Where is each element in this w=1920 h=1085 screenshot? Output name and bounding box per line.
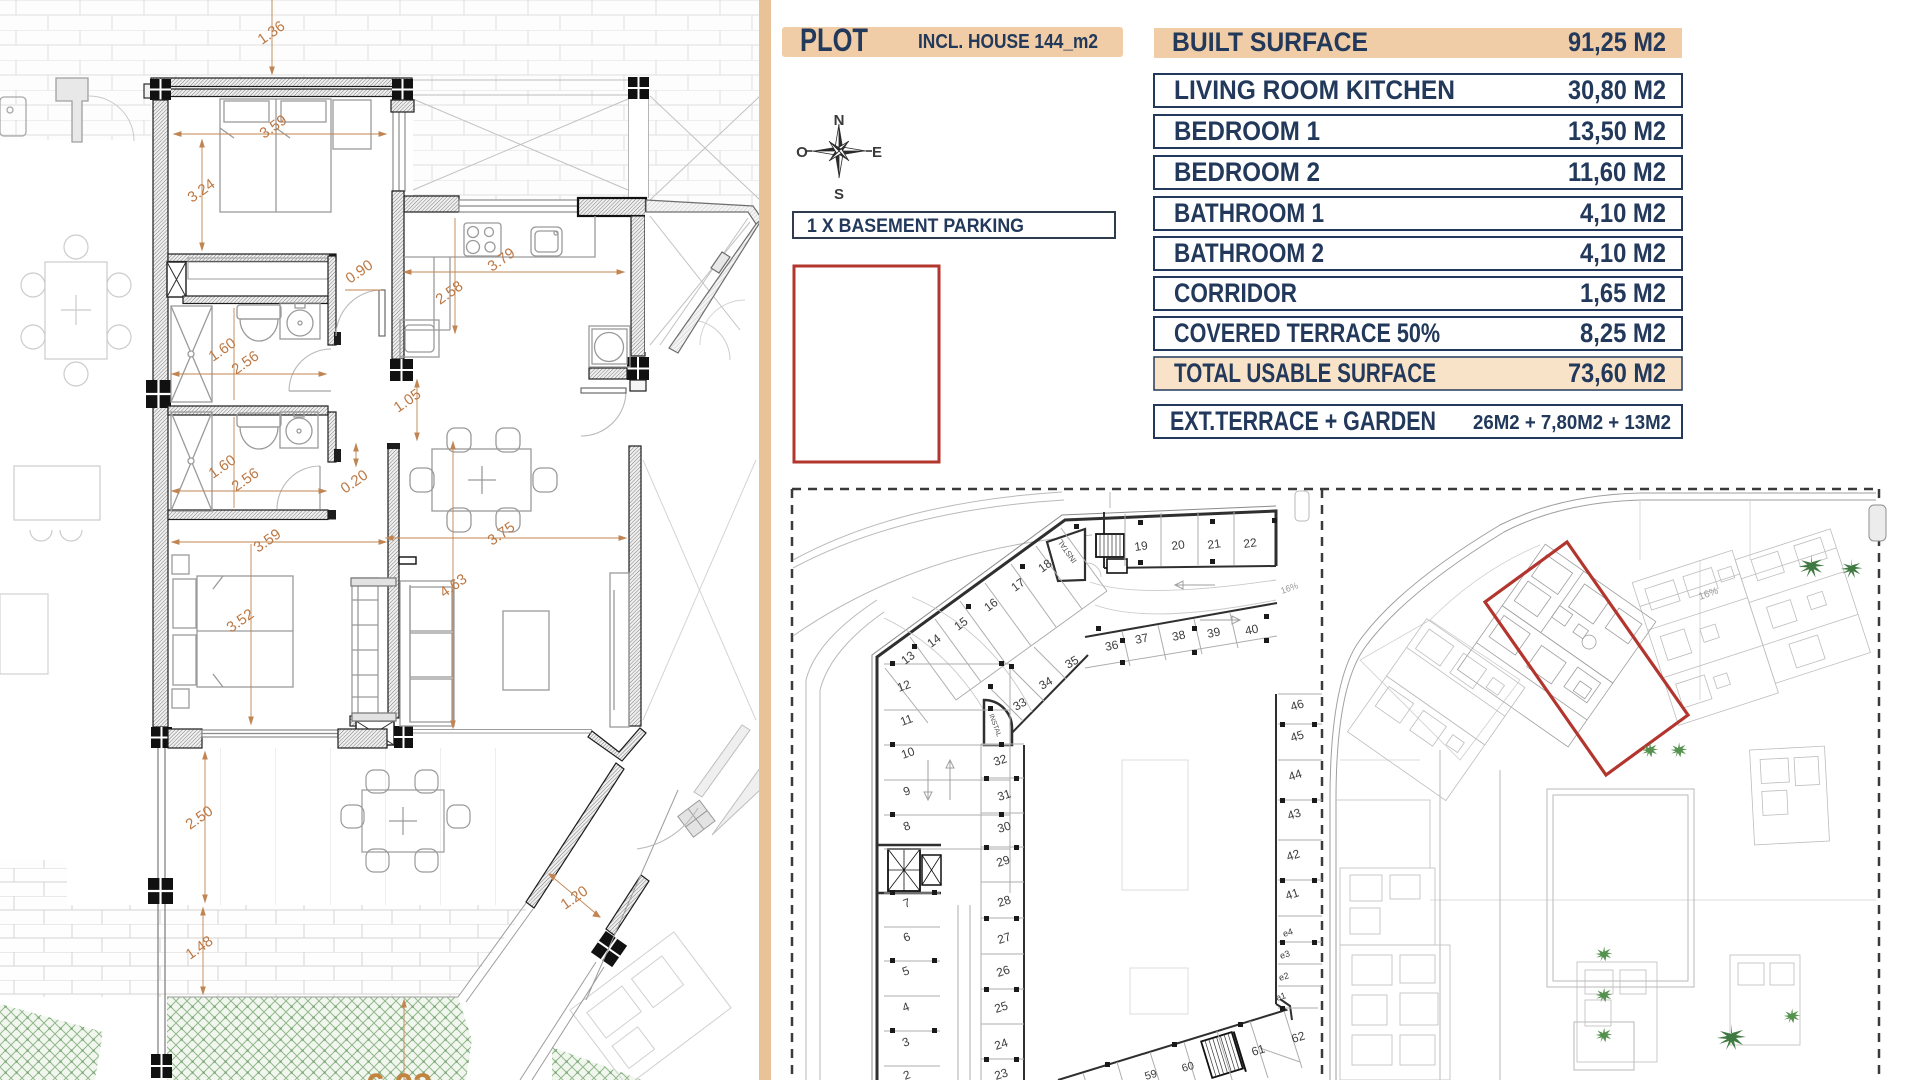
svg-text:N: N: [834, 112, 845, 129]
svg-text:PLOT: PLOT: [800, 22, 868, 58]
svg-text:BATHROOM 1: BATHROOM 1: [1174, 198, 1324, 228]
svg-text:4,10 M2: 4,10 M2: [1580, 238, 1666, 268]
svg-text:E: E: [872, 144, 882, 161]
svg-text:4,10 M2: 4,10 M2: [1580, 198, 1666, 228]
svg-text:LIVING ROOM KITCHEN: LIVING ROOM KITCHEN: [1174, 75, 1455, 105]
svg-text:8,25 M2: 8,25 M2: [1580, 318, 1666, 348]
svg-text:BEDROOM 1: BEDROOM 1: [1174, 116, 1320, 146]
svg-text:BUILT SURFACE: BUILT SURFACE: [1172, 27, 1368, 57]
svg-text:26M2 + 7,80M2 + 13M2: 26M2 + 7,80M2 + 13M2: [1473, 412, 1671, 434]
svg-text:21: 21: [1206, 536, 1221, 552]
svg-text:30,80 M2: 30,80 M2: [1568, 75, 1666, 105]
svg-text:13,50 M2: 13,50 M2: [1568, 116, 1666, 146]
svg-text:S: S: [834, 186, 844, 203]
svg-text:1 X BASEMENT PARKING: 1 X BASEMENT PARKING: [807, 216, 1024, 237]
svg-text:1,65 M2: 1,65 M2: [1580, 278, 1666, 308]
svg-text:BATHROOM 2: BATHROOM 2: [1174, 238, 1324, 268]
svg-text:19: 19: [1133, 538, 1148, 554]
svg-text:73,60 M2: 73,60 M2: [1568, 358, 1666, 388]
svg-text:91,25 M2: 91,25 M2: [1568, 27, 1666, 57]
svg-text:EXT.TERRACE + GARDEN: EXT.TERRACE + GARDEN: [1170, 406, 1436, 436]
svg-text:INCL. HOUSE 144_m2: INCL. HOUSE 144_m2: [918, 31, 1098, 53]
svg-text:11,60 M2: 11,60 M2: [1568, 157, 1666, 187]
svg-text:22: 22: [1242, 535, 1257, 551]
svg-text:O: O: [796, 144, 808, 161]
svg-text:20: 20: [1170, 537, 1185, 553]
svg-text:CORRIDOR: CORRIDOR: [1174, 278, 1297, 308]
svg-text:COVERED TERRACE 50%: COVERED TERRACE 50%: [1174, 318, 1440, 348]
svg-text:6.03: 6.03: [366, 1067, 432, 1080]
svg-text:BEDROOM 2: BEDROOM 2: [1174, 157, 1320, 187]
svg-text:TOTAL USABLE SURFACE: TOTAL USABLE SURFACE: [1174, 358, 1436, 388]
